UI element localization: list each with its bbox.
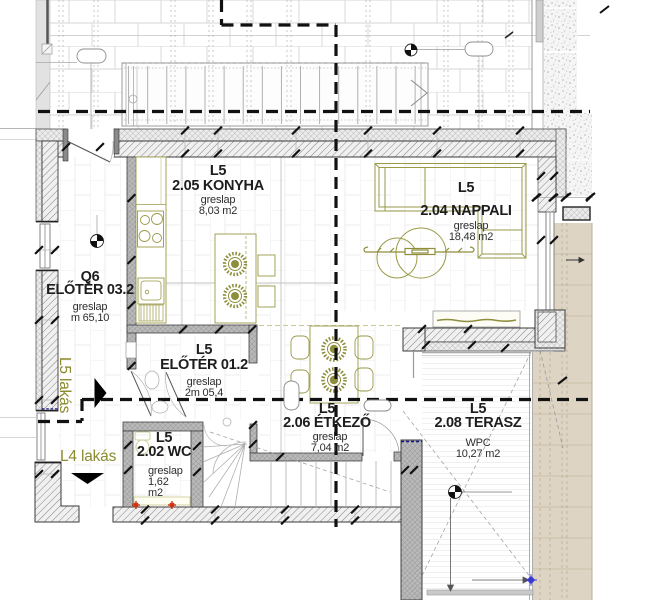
svg-text:L5: L5 <box>210 163 227 179</box>
svg-text:2m 05,4: 2m 05,4 <box>185 387 223 399</box>
svg-text:18,48 m2: 18,48 m2 <box>449 231 493 243</box>
svg-text:L5: L5 <box>458 180 475 196</box>
svg-text:8,03 m2: 8,03 m2 <box>199 205 237 217</box>
svg-text:L5 lakás: L5 lakás <box>56 357 73 414</box>
svg-text:ELŐTÉR 03.2: ELŐTÉR 03.2 <box>46 280 134 298</box>
svg-text:2.05 KONYHA: 2.05 KONYHA <box>172 178 265 194</box>
svg-text:L4 lakás: L4 lakás <box>60 448 117 465</box>
svg-text:2.02 WC: 2.02 WC <box>137 444 192 460</box>
svg-text:10,27 m2: 10,27 m2 <box>456 448 500 460</box>
svg-text:7,04 m2: 7,04 m2 <box>311 442 349 454</box>
svg-text:2.06 ÉTKEZŐ: 2.06 ÉTKEZŐ <box>283 413 371 431</box>
svg-text:2.04 NAPPALI: 2.04 NAPPALI <box>420 203 511 219</box>
svg-text:ELŐTÉR 01.2: ELŐTÉR 01.2 <box>160 355 248 373</box>
svg-text:2.08 TERASZ: 2.08 TERASZ <box>435 415 522 431</box>
svg-text:m 65,10: m 65,10 <box>71 312 109 324</box>
svg-text:m2: m2 <box>148 487 163 499</box>
svg-text:L5: L5 <box>196 342 213 358</box>
